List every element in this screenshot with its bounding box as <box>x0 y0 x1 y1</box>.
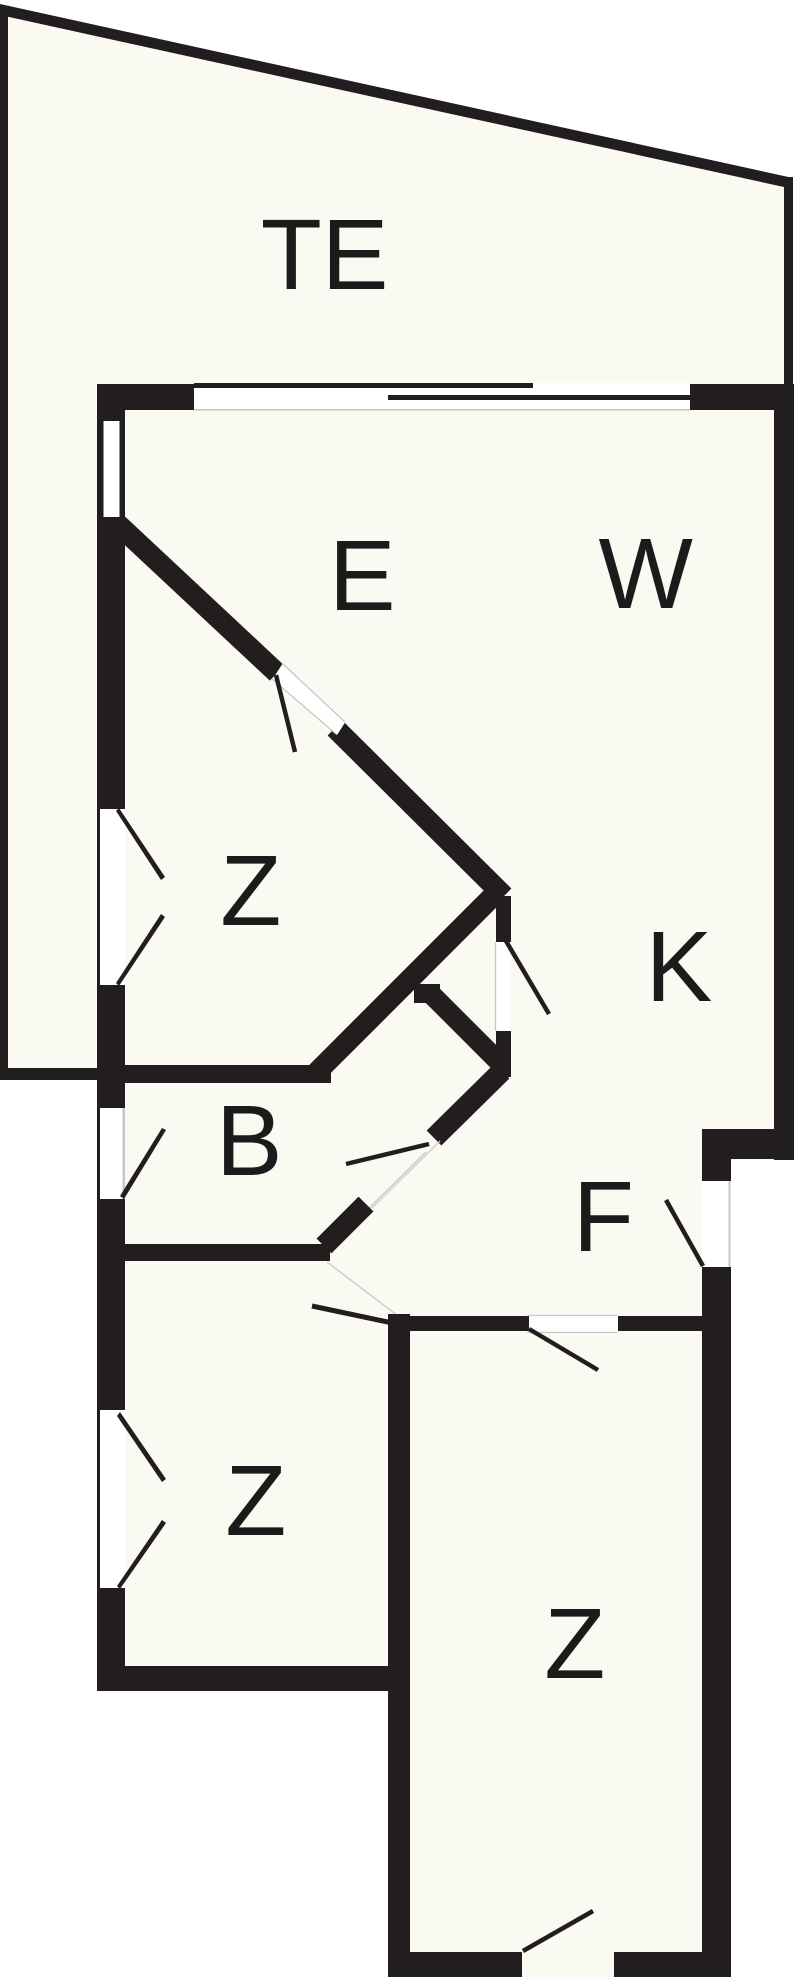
svg-text:TE: TE <box>261 199 389 311</box>
svg-text:E: E <box>329 520 396 632</box>
svg-text:Z: Z <box>220 835 281 947</box>
svg-text:B: B <box>216 1085 283 1197</box>
svg-text:W: W <box>599 518 694 630</box>
svg-text:Z: Z <box>544 1588 605 1700</box>
svg-text:F: F <box>573 1161 634 1273</box>
svg-text:Z: Z <box>225 1445 286 1557</box>
svg-text:K: K <box>646 911 713 1023</box>
